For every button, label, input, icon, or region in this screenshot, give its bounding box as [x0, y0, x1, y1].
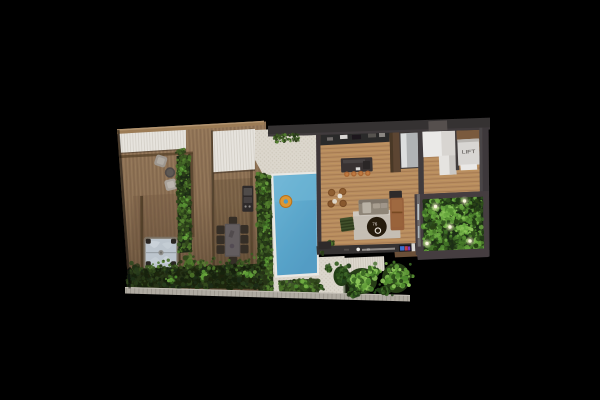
svg-text:75: 75	[366, 247, 370, 251]
svg-text:76: 76	[372, 221, 378, 226]
svg-text:LIFT: LIFT	[462, 149, 476, 156]
